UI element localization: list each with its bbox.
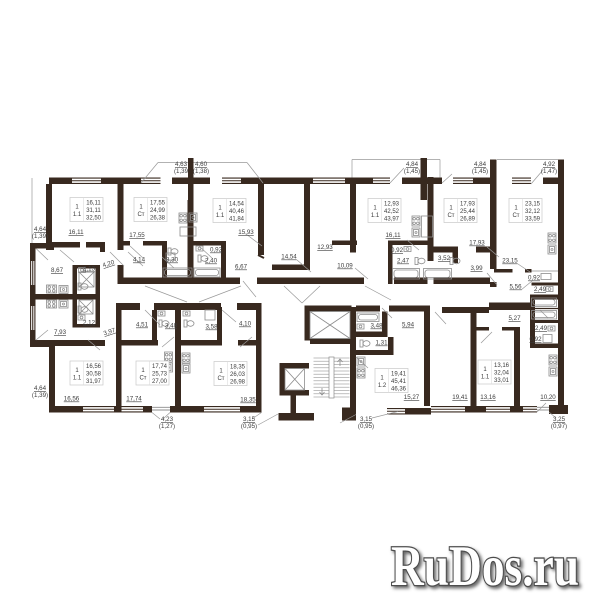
- svg-text:3,30: 3,30: [166, 257, 179, 264]
- svg-text:4,64: 4,64: [34, 226, 47, 233]
- svg-text:2,47: 2,47: [397, 258, 410, 265]
- svg-text:4,10: 4,10: [239, 321, 252, 328]
- svg-text:25,44: 25,44: [460, 209, 476, 215]
- svg-text:Ст: Ст: [137, 212, 144, 218]
- svg-text:5,56: 5,56: [509, 284, 522, 291]
- svg-text:19,41: 19,41: [391, 372, 407, 378]
- svg-text:32,50: 32,50: [86, 216, 102, 222]
- svg-text:17,93: 17,93: [469, 240, 485, 247]
- svg-text:1.1: 1.1: [73, 212, 82, 218]
- svg-text:0,92: 0,92: [391, 247, 404, 254]
- svg-text:3,48: 3,48: [370, 323, 383, 330]
- svg-text:1.2: 1.2: [378, 383, 387, 389]
- svg-text:4,92: 4,92: [543, 161, 556, 168]
- svg-text:4,84: 4,84: [406, 161, 419, 168]
- svg-text:5,27: 5,27: [508, 315, 521, 322]
- svg-text:17,74: 17,74: [152, 364, 168, 370]
- svg-text:Ст: Ст: [217, 376, 224, 382]
- svg-text:3,15: 3,15: [243, 416, 256, 423]
- svg-text:4,60: 4,60: [195, 161, 208, 168]
- svg-text:41,84: 41,84: [229, 217, 245, 223]
- svg-text:4,64: 4,64: [34, 385, 47, 392]
- svg-text:32,04: 32,04: [494, 371, 510, 377]
- svg-text:14,54: 14,54: [229, 202, 245, 208]
- svg-text:19,41: 19,41: [452, 394, 468, 401]
- svg-text:12,93: 12,93: [384, 202, 400, 208]
- svg-text:3,52: 3,52: [438, 255, 451, 262]
- svg-text:4,63: 4,63: [175, 161, 188, 168]
- svg-text:40,46: 40,46: [229, 209, 245, 215]
- svg-text:4,84: 4,84: [474, 161, 487, 168]
- svg-text:16,11: 16,11: [86, 201, 101, 207]
- svg-text:(1,45): (1,45): [472, 168, 488, 175]
- svg-text:5,94: 5,94: [402, 322, 415, 329]
- svg-text:43,97: 43,97: [384, 217, 400, 223]
- svg-text:31,97: 31,97: [86, 379, 102, 385]
- svg-text:1.1: 1.1: [73, 376, 82, 382]
- svg-text:17,55: 17,55: [129, 232, 145, 239]
- svg-text:(0,97): (0,97): [551, 423, 567, 430]
- svg-text:2,49: 2,49: [535, 325, 548, 332]
- svg-text:18,35: 18,35: [240, 397, 256, 404]
- svg-text:18,35: 18,35: [230, 365, 246, 371]
- svg-text:24,99: 24,99: [150, 208, 166, 214]
- svg-text:32,12: 32,12: [525, 209, 541, 215]
- svg-text:2,12: 2,12: [83, 320, 96, 327]
- svg-text:(1,39: (1,39: [174, 168, 189, 175]
- svg-text:2,40: 2,40: [205, 258, 218, 265]
- svg-text:Ст: Ст: [512, 213, 519, 219]
- svg-text:13,16: 13,16: [494, 363, 510, 369]
- svg-text:4,14: 4,14: [133, 257, 146, 264]
- svg-text:3,58: 3,58: [205, 324, 218, 331]
- svg-text:16,56: 16,56: [64, 396, 80, 403]
- svg-text:3,25: 3,25: [553, 416, 566, 423]
- svg-text:(1,47): (1,47): [541, 168, 557, 175]
- svg-text:12,93: 12,93: [317, 244, 333, 251]
- svg-text:26,38: 26,38: [150, 216, 166, 222]
- svg-text:0,92: 0,92: [210, 247, 223, 254]
- svg-text:13,16: 13,16: [480, 394, 496, 401]
- svg-text:15,27: 15,27: [404, 394, 420, 401]
- svg-text:26,89: 26,89: [460, 217, 476, 223]
- svg-text:2,13: 2,13: [83, 266, 96, 273]
- svg-text:23,15: 23,15: [525, 202, 541, 208]
- svg-text:17,55: 17,55: [150, 201, 166, 207]
- svg-text:(1,27): (1,27): [159, 423, 175, 430]
- svg-text:1.1: 1.1: [481, 375, 490, 381]
- svg-text:0,92: 0,92: [528, 275, 541, 282]
- svg-text:1.1: 1.1: [216, 213, 225, 219]
- svg-text:Ст: Ст: [447, 213, 454, 219]
- svg-text:23,15: 23,15: [502, 258, 518, 265]
- svg-text:33,59: 33,59: [525, 217, 541, 223]
- svg-text:45,41: 45,41: [391, 379, 407, 385]
- svg-text:33,01: 33,01: [494, 378, 510, 384]
- svg-text:2,49: 2,49: [534, 286, 547, 293]
- svg-text:17,93: 17,93: [460, 202, 476, 208]
- svg-text:(0,95): (0,95): [241, 423, 257, 430]
- svg-text:(1,39): (1,39): [32, 233, 48, 240]
- svg-text:1.1: 1.1: [371, 213, 380, 219]
- svg-text:4,51: 4,51: [136, 322, 149, 329]
- svg-text:27,00: 27,00: [152, 379, 168, 385]
- svg-text:(1,38): (1,38): [193, 168, 209, 175]
- svg-text:0,92: 0,92: [529, 336, 542, 343]
- svg-text:3,99: 3,99: [470, 265, 483, 272]
- svg-text:(1,39): (1,39): [32, 392, 48, 399]
- svg-text:10,09: 10,09: [337, 263, 353, 270]
- svg-text:(1,45): (1,45): [404, 168, 420, 175]
- svg-text:14,54: 14,54: [281, 254, 297, 261]
- svg-text:6,67: 6,67: [235, 264, 248, 271]
- svg-text:16,11: 16,11: [68, 229, 84, 236]
- svg-text:16,11: 16,11: [385, 232, 401, 239]
- svg-text:26,98: 26,98: [230, 380, 246, 386]
- svg-text:31,11: 31,11: [86, 208, 101, 214]
- svg-text:(0,95): (0,95): [358, 423, 374, 430]
- svg-text:15,93: 15,93: [238, 229, 254, 236]
- svg-text:8,67: 8,67: [51, 267, 64, 274]
- svg-text:7,93: 7,93: [54, 329, 67, 336]
- svg-text:42,52: 42,52: [384, 209, 400, 215]
- svg-text:10,20: 10,20: [540, 394, 556, 401]
- svg-text:16,56: 16,56: [86, 364, 102, 370]
- svg-text:Ст: Ст: [139, 376, 146, 382]
- svg-text:1,31: 1,31: [375, 340, 388, 347]
- svg-text:RuDos.ru: RuDos.ru: [391, 535, 579, 598]
- svg-text:3,15: 3,15: [360, 416, 373, 423]
- svg-text:30,58: 30,58: [86, 372, 102, 378]
- svg-text:4,23: 4,23: [161, 416, 174, 423]
- svg-text:46,36: 46,36: [391, 387, 407, 393]
- svg-text:26,03: 26,03: [230, 372, 246, 378]
- svg-text:17,74: 17,74: [126, 396, 142, 403]
- svg-text:3,48: 3,48: [165, 323, 178, 330]
- svg-text:25,73: 25,73: [152, 372, 168, 378]
